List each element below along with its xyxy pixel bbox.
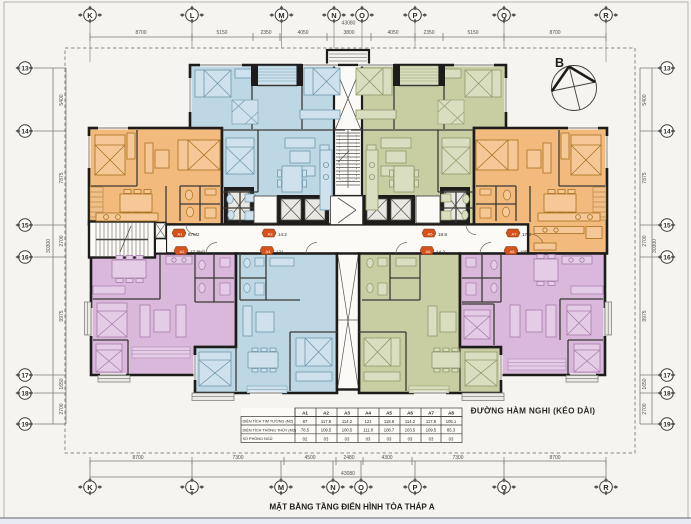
- svg-text:Q: Q: [501, 11, 507, 20]
- svg-text:DIỆN TÍCH TIM TƯỜNG (M2): DIỆN TÍCH TIM TƯỜNG (M2): [243, 419, 295, 424]
- svg-text:A6: A6: [407, 410, 413, 415]
- svg-text:P: P: [412, 483, 417, 492]
- svg-text:13: 13: [663, 65, 671, 72]
- svg-text:A1: A1: [178, 232, 184, 237]
- svg-text:R: R: [603, 483, 609, 492]
- svg-text:14: 14: [21, 128, 29, 135]
- svg-text:85.3: 85.3: [447, 428, 456, 433]
- svg-text:78.5: 78.5: [301, 428, 310, 433]
- svg-text:13: 13: [21, 65, 29, 72]
- svg-text:A3: A3: [344, 410, 350, 415]
- svg-text:15: 15: [663, 222, 671, 229]
- svg-text:8700: 8700: [549, 455, 560, 461]
- svg-text:03: 03: [324, 436, 329, 441]
- svg-text:111.8: 111.8: [363, 428, 374, 433]
- svg-text:ĐƯỜNG HÀM NGHI (KÉO DÀI): ĐƯỜNG HÀM NGHI (KÉO DÀI): [471, 405, 596, 416]
- svg-text:A4: A4: [266, 249, 272, 254]
- svg-text:9975: 9975: [642, 310, 648, 321]
- svg-text:103.5: 103.5: [405, 428, 416, 433]
- svg-text:P: P: [412, 11, 417, 20]
- svg-text:3800: 3800: [343, 30, 354, 36]
- svg-text:100.5: 100.5: [342, 428, 353, 433]
- svg-text:43080: 43080: [341, 471, 355, 477]
- svg-text:A8: A8: [510, 249, 516, 254]
- svg-text:114.2: 114.2: [405, 419, 416, 424]
- svg-text:4500: 4500: [304, 455, 315, 461]
- svg-text:A5: A5: [386, 410, 392, 415]
- svg-text:DIỆN TÍCH THÔNG THỦY (M2): DIỆN TÍCH THÔNG THỦY (M2): [243, 427, 297, 432]
- svg-text:03: 03: [408, 436, 413, 441]
- svg-text:N: N: [331, 11, 336, 20]
- svg-text:17: 17: [21, 372, 29, 379]
- svg-text:03: 03: [449, 436, 454, 441]
- svg-text:5400: 5400: [59, 94, 65, 105]
- svg-text:16: 16: [663, 254, 671, 261]
- svg-text:O: O: [359, 11, 365, 20]
- svg-text:A2: A2: [323, 410, 329, 415]
- svg-text:2700: 2700: [642, 403, 648, 414]
- svg-text:03: 03: [345, 436, 350, 441]
- svg-text:7300: 7300: [452, 455, 463, 461]
- svg-text:8700: 8700: [132, 455, 143, 461]
- svg-text:K: K: [87, 11, 93, 20]
- svg-text:MẶT BẰNG TẦNG ĐIỂN HÌNH TÒA TH: MẶT BẰNG TẦNG ĐIỂN HÌNH TÒA THÁP A: [269, 501, 434, 512]
- svg-text:A5: A5: [428, 232, 434, 237]
- svg-text:117.8: 117.8: [426, 419, 437, 424]
- svg-text:K: K: [87, 483, 93, 492]
- svg-text:17: 17: [663, 372, 671, 379]
- svg-text:2350: 2350: [423, 30, 434, 36]
- svg-text:A7: A7: [512, 232, 518, 237]
- svg-text:M: M: [278, 483, 284, 492]
- svg-text:5400: 5400: [642, 94, 648, 105]
- svg-text:14.2: 14.2: [436, 249, 445, 254]
- svg-text:4050: 4050: [387, 30, 398, 36]
- svg-text:1650: 1650: [59, 378, 65, 389]
- svg-text:2350: 2350: [260, 30, 271, 36]
- svg-text:O: O: [358, 483, 364, 492]
- svg-text:A6: A6: [426, 249, 432, 254]
- svg-text:117.8: 117.8: [321, 419, 332, 424]
- svg-text:105.: 105.: [520, 249, 529, 254]
- svg-text:2700: 2700: [59, 235, 65, 246]
- svg-text:A1: A1: [302, 410, 308, 415]
- svg-text:109.5: 109.5: [426, 428, 437, 433]
- svg-text:19: 19: [663, 421, 671, 428]
- svg-text:43080: 43080: [342, 21, 356, 27]
- svg-text:121: 121: [365, 419, 373, 424]
- svg-text:B: B: [555, 56, 564, 70]
- svg-text:2700: 2700: [642, 235, 648, 246]
- svg-text:30300: 30300: [46, 239, 52, 253]
- svg-text:R: R: [603, 11, 609, 20]
- svg-text:1650: 1650: [642, 378, 648, 389]
- svg-text:A8: A8: [448, 410, 454, 415]
- svg-text:03: 03: [387, 436, 392, 441]
- svg-text:2700: 2700: [59, 403, 65, 414]
- svg-text:A7: A7: [428, 410, 434, 415]
- svg-text:A2: A2: [180, 249, 186, 254]
- svg-text:8700: 8700: [549, 30, 560, 36]
- svg-text:17.8: 17.8: [522, 232, 531, 237]
- svg-text:M: M: [278, 11, 284, 20]
- svg-text:03: 03: [429, 436, 434, 441]
- svg-text:19: 19: [21, 421, 29, 428]
- svg-text:7300: 7300: [232, 455, 243, 461]
- svg-text:9975: 9975: [59, 310, 65, 321]
- svg-text:18.8: 18.8: [438, 232, 447, 237]
- svg-text:4050: 4050: [297, 30, 308, 36]
- svg-text:03: 03: [366, 436, 371, 441]
- svg-text:118.8: 118.8: [384, 419, 395, 424]
- svg-text:87: 87: [303, 419, 308, 424]
- svg-text:L: L: [190, 483, 195, 492]
- svg-text:17.8M2: 17.8M2: [190, 249, 206, 254]
- svg-text:A3: A3: [268, 232, 274, 237]
- svg-text:N: N: [330, 483, 335, 492]
- svg-text:109.5: 109.5: [321, 428, 332, 433]
- svg-text:121: 121: [276, 249, 284, 254]
- svg-text:02: 02: [303, 436, 308, 441]
- svg-text:30300: 30300: [652, 239, 658, 253]
- svg-text:SỐ PHÒNG NGỦ: SỐ PHÒNG NGỦ: [243, 436, 273, 441]
- svg-text:A4: A4: [365, 410, 371, 415]
- svg-text:15: 15: [21, 222, 29, 229]
- svg-text:14: 14: [663, 128, 671, 135]
- svg-text:105.1: 105.1: [446, 419, 457, 424]
- svg-text:14.2: 14.2: [278, 232, 287, 237]
- svg-text:L: L: [190, 11, 195, 20]
- svg-text:8700: 8700: [135, 30, 146, 36]
- svg-text:114.2: 114.2: [342, 419, 353, 424]
- svg-text:108.7: 108.7: [384, 428, 395, 433]
- svg-text:4300: 4300: [381, 455, 392, 461]
- svg-text:18: 18: [663, 390, 671, 397]
- svg-text:5150: 5150: [467, 30, 478, 36]
- svg-text:Q: Q: [501, 483, 507, 492]
- svg-text:5150: 5150: [216, 30, 227, 36]
- svg-text:16: 16: [21, 254, 29, 261]
- svg-text:18: 18: [21, 390, 29, 397]
- svg-text:2480: 2480: [343, 455, 354, 461]
- svg-text:7875: 7875: [642, 172, 648, 183]
- svg-text:7875: 7875: [59, 172, 65, 183]
